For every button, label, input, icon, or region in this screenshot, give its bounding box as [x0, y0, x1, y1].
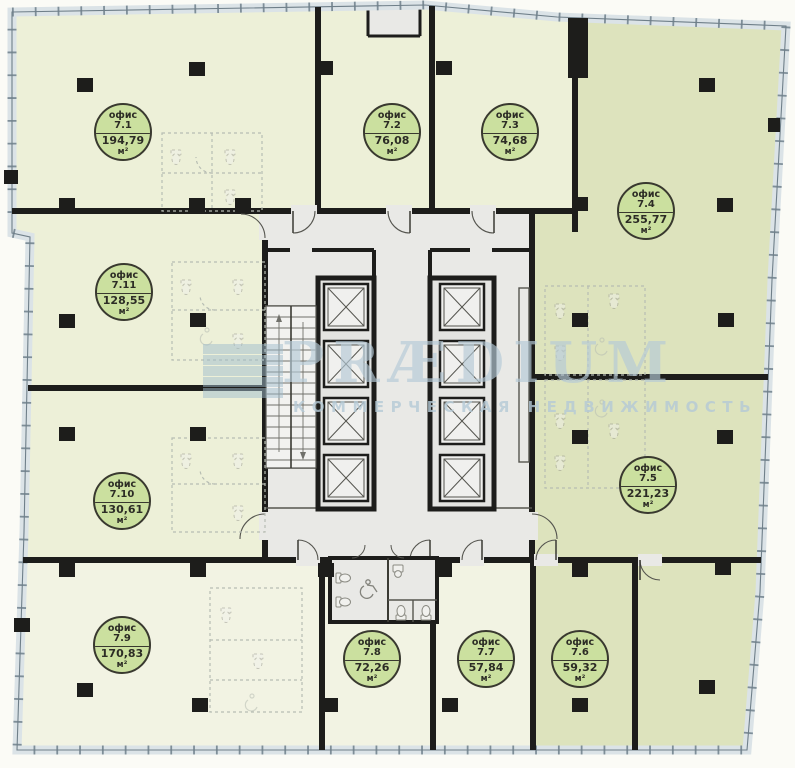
office-badge-7-5[interactable]: офис7.5 221,23м²	[619, 456, 677, 514]
column-icon	[189, 62, 205, 76]
office-area: 194,79	[102, 135, 144, 148]
office-area: 170,83	[101, 648, 143, 661]
column-icon	[318, 563, 334, 577]
column-icon	[192, 698, 208, 712]
stairs-icon	[266, 306, 316, 468]
column-icon	[572, 61, 588, 75]
office-area: 74,68	[493, 135, 528, 148]
office-badge-7-11[interactable]: офис7.11 128,55м²	[95, 263, 153, 321]
office-id: 7.11	[112, 281, 137, 292]
column-icon	[59, 314, 75, 328]
office-area-unit: м²	[575, 675, 586, 685]
column-icon	[77, 683, 93, 697]
office-area: 221,23	[627, 488, 669, 501]
office-badge-7-4[interactable]: офис7.4 255,77м²	[617, 182, 675, 240]
room-office-7-10[interactable]	[23, 388, 265, 560]
office-area: 255,77	[625, 214, 667, 227]
office-area-unit: м²	[119, 308, 130, 318]
column-icon	[59, 427, 75, 441]
office-area: 57,84	[469, 662, 504, 675]
office-badge-7-6[interactable]: офис7.6 59,32м²	[551, 630, 609, 688]
office-id: 7.1	[114, 121, 132, 132]
office-id: 7.3	[501, 121, 519, 132]
elevator-bank-left	[318, 278, 374, 509]
column-icon	[715, 561, 731, 575]
column-icon	[572, 563, 588, 577]
column-icon	[436, 563, 452, 577]
column-icon	[317, 61, 333, 75]
office-area-unit: м²	[641, 227, 652, 237]
wc-block	[330, 545, 437, 622]
column-icon	[59, 563, 75, 577]
column-icon	[572, 313, 588, 327]
column-icon	[572, 430, 588, 444]
column-icon	[699, 78, 715, 92]
column-icon	[699, 680, 715, 694]
office-area-unit: м²	[481, 675, 492, 685]
office-area-unit: м²	[387, 148, 398, 158]
office-area: 72,26	[355, 662, 390, 675]
column-icon	[436, 61, 452, 75]
office-id: 7.8	[363, 648, 381, 659]
balcony-notch	[368, 8, 420, 36]
column-icon	[235, 198, 251, 212]
office-area: 59,32	[563, 662, 598, 675]
column-icon	[190, 313, 206, 327]
office-badge-7-2[interactable]: офис7.2 76,08м²	[363, 103, 421, 161]
office-area-unit: м²	[117, 517, 128, 527]
room-office-7-1[interactable]	[12, 7, 318, 211]
column-icon	[442, 698, 458, 712]
office-area-unit: м²	[643, 501, 654, 511]
office-id: 7.9	[113, 634, 131, 645]
office-area: 130,61	[101, 504, 143, 517]
office-area-unit: м²	[118, 148, 129, 158]
column-icon	[572, 197, 588, 211]
office-area-unit: м²	[117, 661, 128, 671]
elevator-bank-right	[430, 278, 494, 509]
office-badge-7-9[interactable]: офис7.9 170,83м²	[93, 616, 151, 674]
office-badge-7-7[interactable]: офис7.7 57,84м²	[457, 630, 515, 688]
office-area-unit: м²	[505, 148, 516, 158]
column-icon	[322, 698, 338, 712]
office-id: 7.6	[571, 648, 589, 659]
column-icon	[717, 198, 733, 212]
sink-icon	[393, 565, 403, 577]
column-icon	[572, 698, 588, 712]
column-icon	[717, 430, 733, 444]
column-icon	[189, 198, 205, 212]
column-icon	[59, 198, 75, 212]
office-badge-7-10[interactable]: офис7.10 130,61м²	[93, 472, 151, 530]
office-badge-7-3[interactable]: офис7.3 74,68м²	[481, 103, 539, 161]
office-id: 7.4	[637, 200, 655, 211]
office-area-unit: м²	[367, 675, 378, 685]
office-area: 76,08	[375, 135, 410, 148]
office-id: 7.10	[110, 490, 135, 501]
floor-plan-page: PRÆDIUM КОММЕРЧЕСКАЯ НЕДВИЖИМОСТЬ офис7.…	[0, 0, 795, 768]
office-badge-7-8[interactable]: офис7.8 72,26м²	[343, 630, 401, 688]
column-icon	[718, 313, 734, 327]
column-icon	[190, 427, 206, 441]
column-icon	[77, 78, 93, 92]
office-area: 128,55	[103, 295, 145, 308]
office-id: 7.2	[383, 121, 401, 132]
office-id: 7.7	[477, 648, 495, 659]
office-id: 7.5	[639, 474, 657, 485]
column-icon	[190, 563, 206, 577]
office-badge-7-1[interactable]: офис7.1 194,79м²	[94, 103, 152, 161]
